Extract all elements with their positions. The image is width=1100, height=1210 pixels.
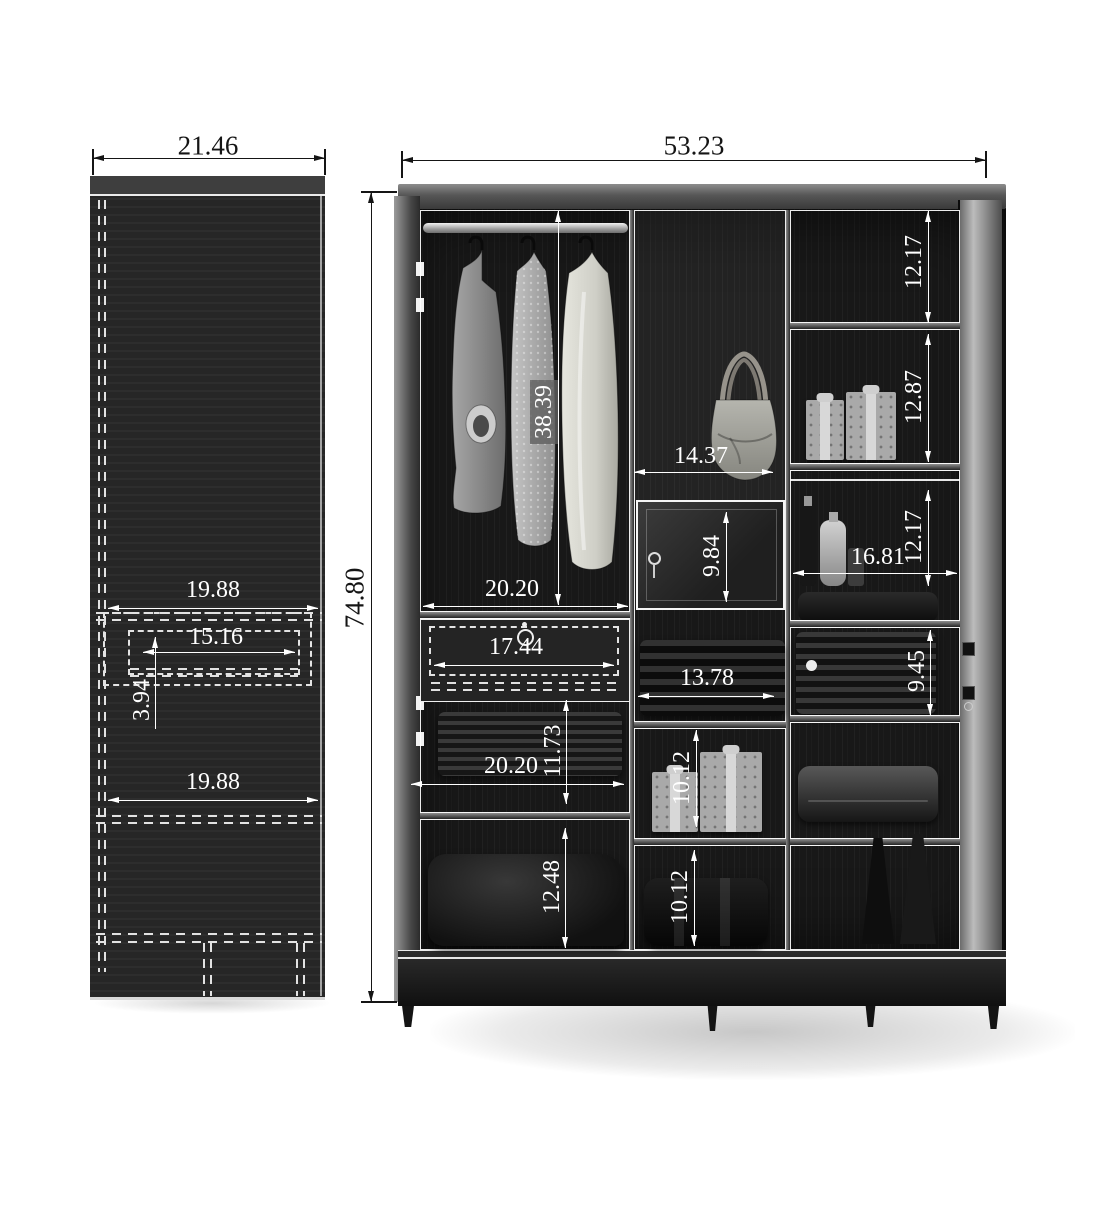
wardrobe-dimension-diagram: 21.46 19.88 15.16 3.94 19.88 53.23 74.80 [0, 0, 1100, 1210]
gift-bow [723, 745, 740, 754]
dim-label-shelf-gap-height: 11.73 [541, 724, 565, 777]
side-dashed-line [96, 941, 322, 943]
side-plinth-dashed-line [303, 943, 305, 996]
left-door-open [394, 196, 420, 1002]
dim-label-stack-shelf-width: 13.78 [680, 666, 734, 690]
side-plinth-dashed-line [210, 943, 212, 996]
dim-line-side-drawer-width [143, 652, 295, 653]
gift-box [700, 752, 762, 832]
perfume-bottle-cap [829, 512, 838, 522]
door-key-icon [964, 702, 973, 711]
door-hinge [962, 642, 975, 656]
dim-tick [361, 1001, 397, 1003]
dim-label-right-shelf3: 12.17 [902, 510, 926, 564]
drawer-dashed-line [431, 682, 617, 684]
dim-line-stack-shelf-width [638, 696, 774, 697]
right-bay-shelf-line [790, 479, 960, 481]
dim-label-front-height: 74.80 [342, 568, 369, 629]
left-bay-drawer [420, 619, 630, 702]
dim-label-drawer-width: 17.44 [489, 635, 543, 659]
perfume-bottle-round [820, 520, 846, 586]
dim-line-left-bay-width-bottom [411, 784, 624, 785]
side-dashed-line [96, 822, 322, 824]
side-panel-edge-highlight [320, 196, 322, 996]
dim-line-right-shelf4 [930, 630, 931, 715]
dim-label-left-bay-width-bottom: 20.20 [484, 754, 538, 778]
dim-line-drawer-width [434, 665, 614, 666]
dim-line-left-bay-width-top [423, 606, 628, 607]
side-panel-top-cap [90, 176, 325, 196]
front-top-rail [398, 184, 1006, 209]
middle-bay-shelf [634, 838, 786, 846]
dim-line-shelf-gap-height [566, 700, 567, 804]
plinth [398, 950, 1006, 1006]
side-panel-bottom-edge [90, 997, 325, 1000]
dim-tick [361, 191, 397, 193]
key-icon [653, 564, 655, 578]
garment-sleeveless [452, 250, 506, 513]
dim-label-right-shelf4: 9.45 [905, 650, 929, 692]
dim-tick [401, 151, 403, 178]
dim-label-middle-upper-shelf: 10.12 [670, 751, 694, 805]
dim-label-side-drawer-height: 3.94 [130, 679, 154, 721]
dim-line-right-bay-width [793, 573, 957, 574]
side-dashed-line [98, 200, 100, 972]
drawer-knob-dot [522, 622, 527, 627]
dim-label-side-drawer-width: 15.16 [189, 625, 243, 649]
gift-bow [863, 385, 880, 394]
right-bay-shelf [790, 715, 960, 723]
dim-line-middle-bay-width [634, 472, 773, 473]
side-plinth-dashed-line [296, 943, 298, 996]
wardrobe-leg [400, 1005, 416, 1027]
hanging-garments [424, 232, 628, 597]
side-dashed-line [96, 933, 322, 935]
dim-line-locker-height [726, 512, 727, 602]
dim-line-right-shelf3 [928, 490, 929, 586]
gift-ribbon [726, 752, 736, 832]
right-door-open [958, 200, 1002, 1002]
hanger-hook-icon [580, 237, 592, 250]
duffel-bag [644, 878, 768, 946]
dim-line-bottom-shelf-height [565, 828, 566, 948]
dim-tick [985, 151, 987, 178]
dim-line-middle-lower-shelf [694, 850, 695, 946]
gift-ribbon [866, 392, 876, 460]
dim-line-side-shelf-lower [108, 800, 318, 801]
dim-label-locker-height: 9.84 [700, 535, 724, 577]
dim-label-right-shelf1: 12.17 [902, 235, 926, 289]
dim-tick [92, 149, 94, 175]
hanger-hook-icon [522, 237, 534, 250]
dim-tick [324, 149, 326, 175]
dim-line-right-shelf2 [928, 334, 929, 462]
dim-label-front-width: 53.23 [664, 133, 725, 160]
side-dashed-line [104, 200, 106, 972]
folded-sweater [798, 592, 938, 622]
door-hinge [962, 686, 975, 700]
button-dot [806, 660, 817, 671]
hanger-hook-icon [470, 237, 482, 250]
dim-line-hanging-height [558, 211, 559, 605]
gift-box [846, 392, 896, 460]
dim-label-middle-lower-shelf: 10.12 [668, 870, 692, 924]
drawer-dashed-line [431, 689, 617, 691]
floor-shadow-front [430, 1000, 1075, 1080]
folded-blanket-right [798, 766, 938, 822]
perfume-bottle-cap [804, 496, 812, 506]
gift-ribbon [820, 400, 830, 460]
right-bay-shelf [790, 463, 960, 471]
dim-line-side-shelf-upper [108, 608, 318, 609]
dim-label-middle-bay-width: 14.37 [674, 444, 728, 468]
dim-line-front-height [371, 192, 372, 1002]
right-bay-shelf [790, 322, 960, 330]
dim-label-side-width: 21.46 [178, 133, 239, 160]
side-dashed-line [96, 815, 322, 817]
dim-label-side-shelf-lower: 19.88 [186, 770, 240, 794]
middle-bay-shelf [634, 721, 786, 729]
dim-label-left-bay-width-top: 20.20 [485, 577, 539, 601]
garment-long-coat [562, 252, 618, 570]
gift-box [806, 400, 844, 460]
right-bay-shelf [790, 620, 960, 628]
blanket-fold-line [808, 800, 928, 802]
side-plinth-dashed-line [203, 943, 205, 996]
gift-bow [817, 393, 834, 402]
folded-blanket-left [428, 854, 624, 946]
left-bay-shelf [420, 611, 630, 619]
garment-rolled-cuff-inner [473, 415, 489, 437]
dim-label-right-shelf2: 12.87 [902, 370, 926, 424]
dim-label-bottom-shelf-height: 12.48 [540, 860, 564, 914]
dim-line-side-drawer-height [155, 637, 156, 729]
left-bay-shelf [420, 812, 630, 820]
duffel-strap [720, 878, 730, 946]
dim-line-middle-upper-shelf [696, 730, 697, 827]
plinth-line [398, 957, 1006, 959]
dim-label-side-shelf-upper: 19.88 [186, 578, 240, 602]
dim-label-right-bay-width: 16.81 [851, 545, 905, 569]
dim-label-hanging-height: 38.39 [530, 380, 558, 444]
dim-line-right-shelf1 [928, 211, 929, 323]
